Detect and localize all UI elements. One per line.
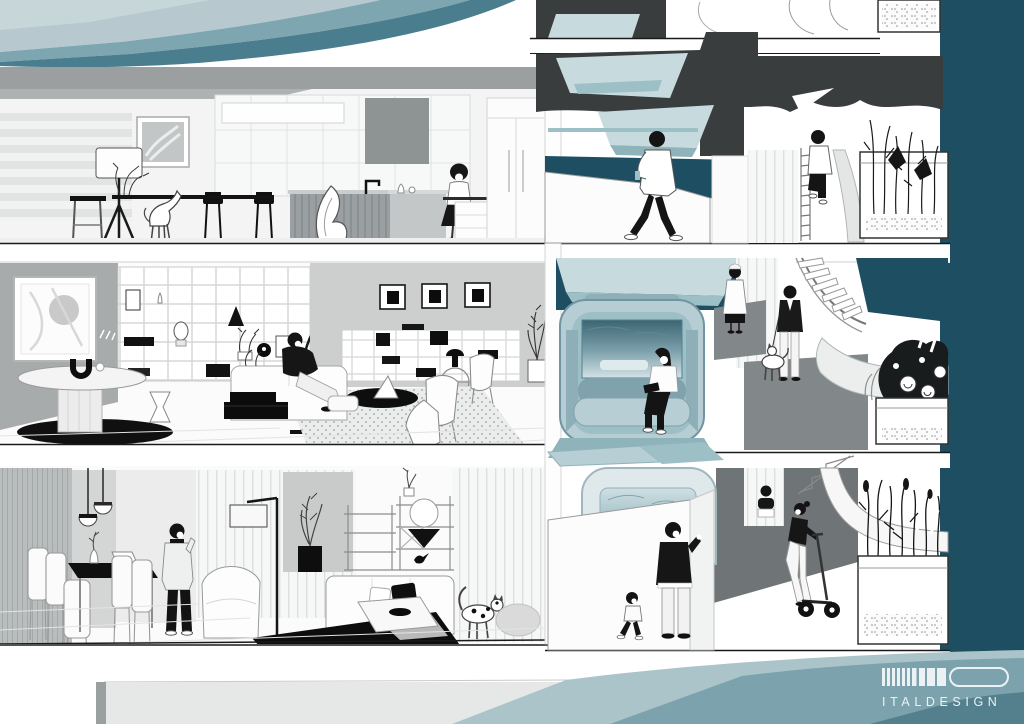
parapet-return	[690, 490, 714, 650]
mid-landing	[548, 258, 948, 466]
logo-wordmark: ITALDESIGN	[882, 695, 1001, 709]
phone	[635, 171, 640, 180]
rooftop-planter	[878, 0, 940, 32]
low-grid-shelf	[342, 324, 520, 381]
kitchen-window-band	[222, 103, 344, 123]
kitchen-counter-edge	[112, 195, 274, 199]
gray-pouf	[496, 604, 540, 636]
peony-flower	[900, 376, 916, 392]
dark-teal-backdrop-column	[940, 0, 1024, 690]
middle-floor-living-room	[0, 263, 547, 452]
mid-skylight-plane	[556, 258, 740, 296]
ceiling-teal-strip	[548, 128, 698, 132]
ottoman	[328, 396, 358, 411]
bay-platform	[548, 14, 640, 38]
italdesign-section-poster: ITALDESIGN	[0, 0, 1024, 724]
kitchen-island	[288, 190, 448, 244]
kitchen-wall-art	[137, 117, 189, 167]
kitchen-ceiling	[0, 67, 545, 89]
stair-curtain-wall	[748, 150, 798, 243]
armchair	[202, 567, 260, 638]
range-hood	[365, 98, 429, 164]
landing-pillar	[712, 156, 748, 243]
autonomous-pod-vehicle	[548, 294, 724, 466]
lower-floor-dining-room	[0, 466, 545, 656]
grid-bookshelf	[118, 267, 310, 381]
pod-bench-seat	[574, 398, 690, 426]
section-illustration: ITALDESIGN	[0, 0, 1024, 724]
circle-ornament	[410, 499, 438, 527]
top-floor-kitchen	[0, 67, 545, 245]
top-right-room	[756, 0, 878, 38]
tall-cabinets	[487, 98, 545, 243]
black-bowl	[389, 608, 411, 616]
abstract-wall-art	[14, 277, 96, 361]
framed-prints	[380, 283, 490, 309]
